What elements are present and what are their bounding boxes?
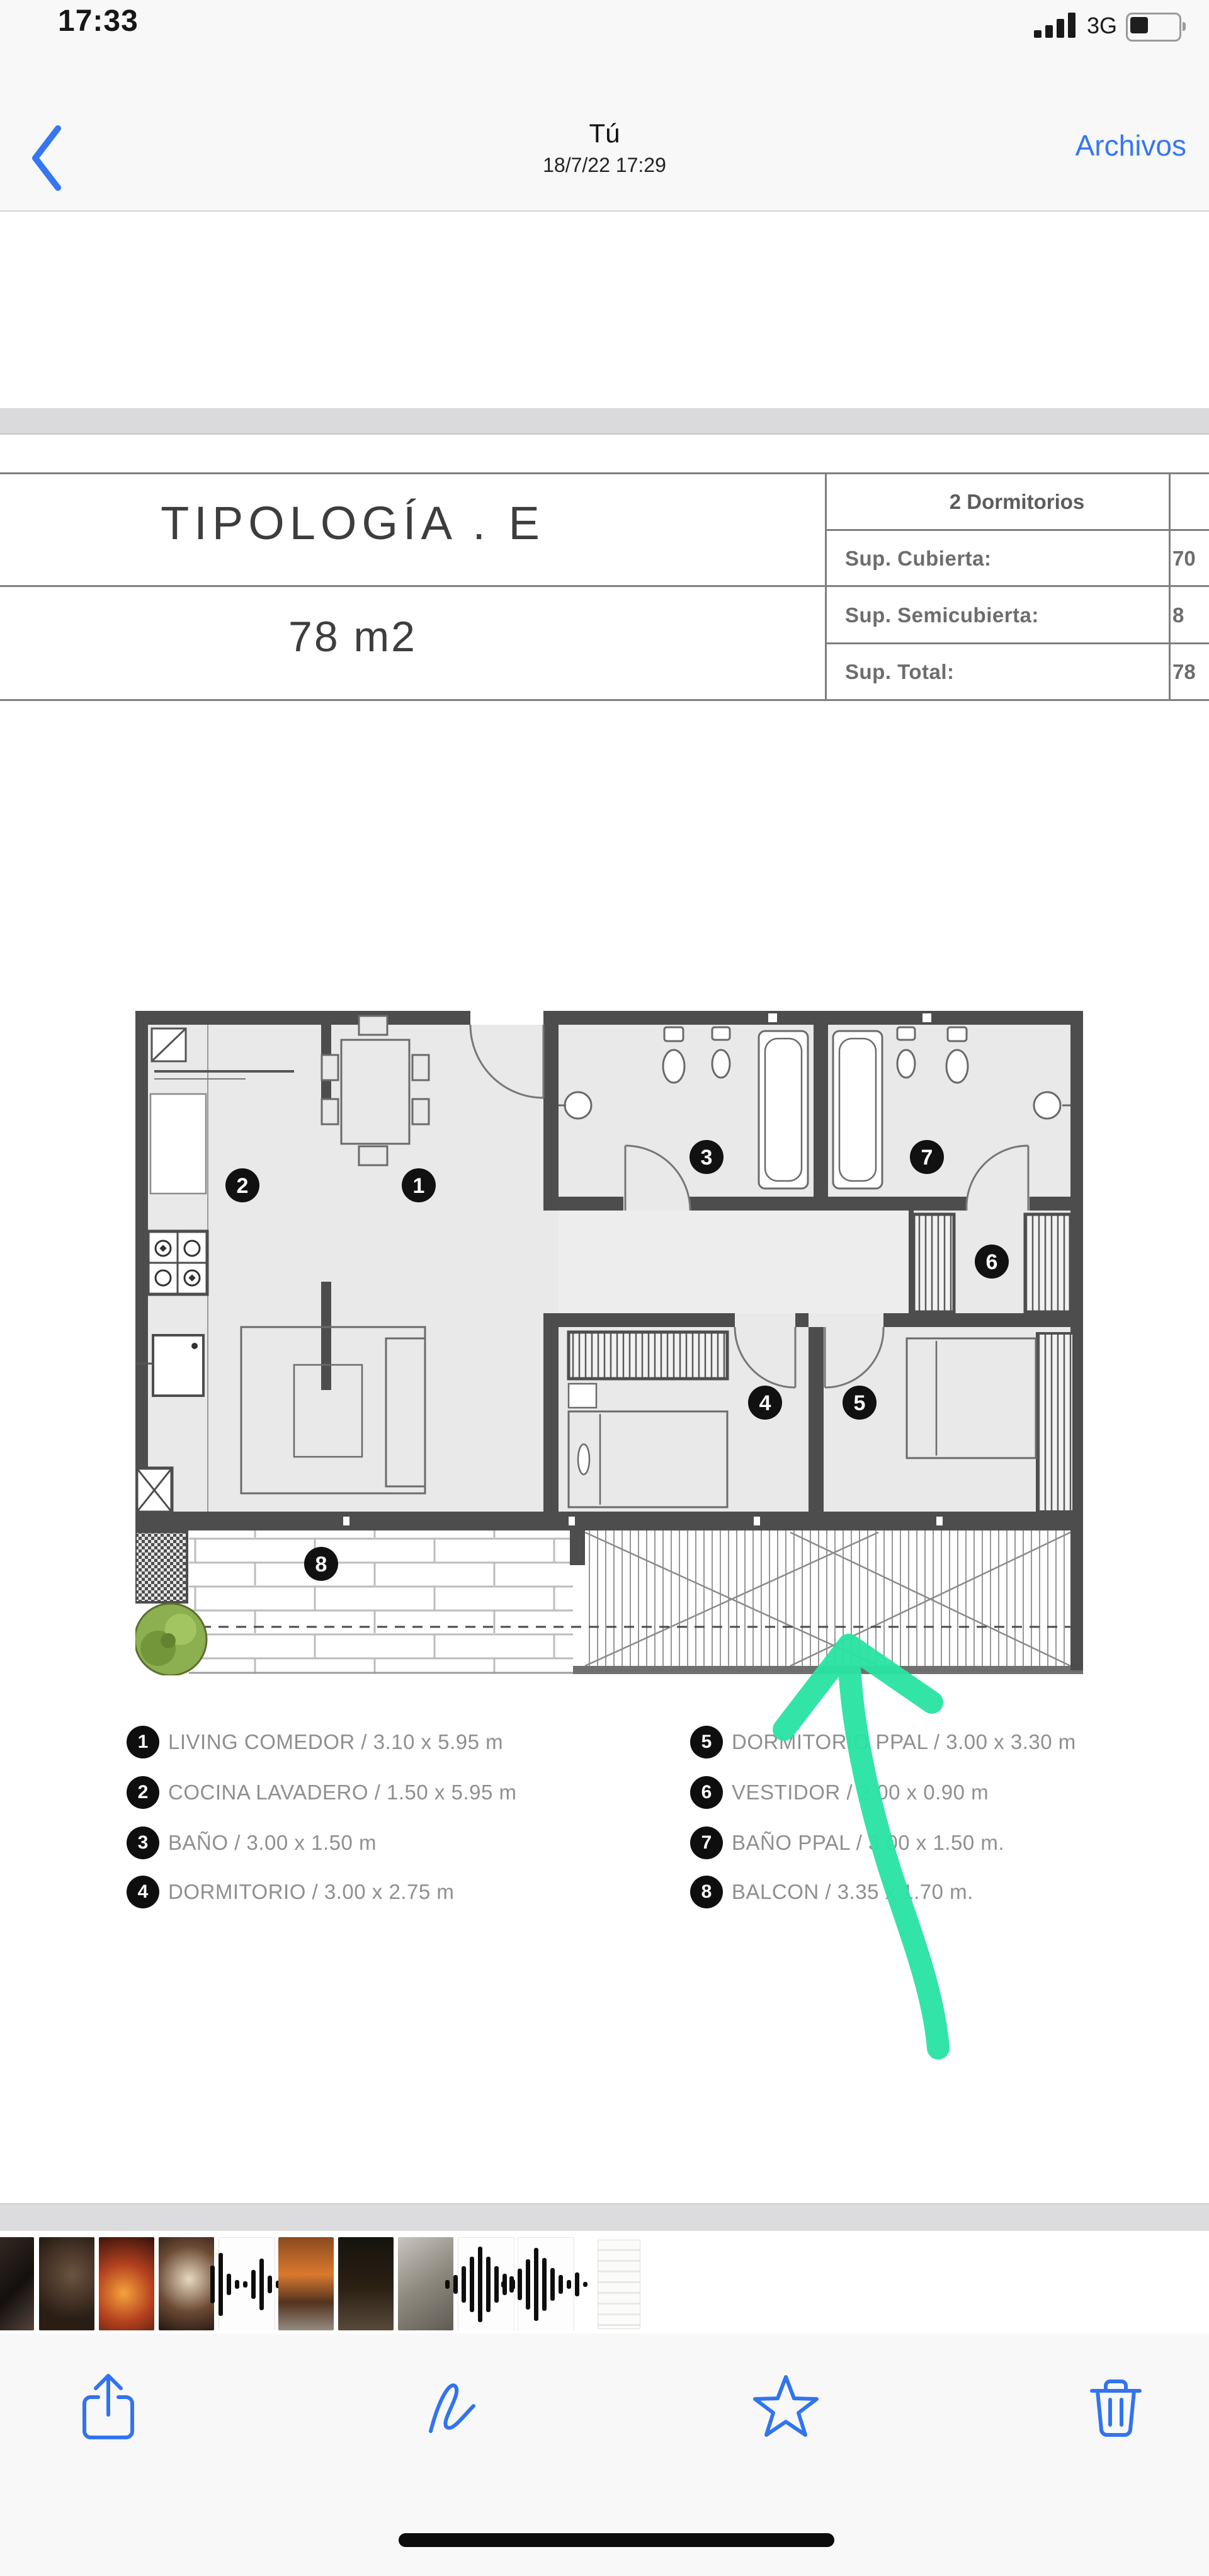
room-number-4: 4 [759,1391,771,1415]
battery-icon [1126,13,1181,42]
waveform-bar [235,2280,239,2289]
signal-icon [1034,11,1079,38]
waveform-bar [251,2270,256,2299]
legend-item: 3BAÑO / 3.00 x 1.50 m [127,1827,377,1859]
home-indicator[interactable] [399,2533,834,2547]
legend-item: 6VESTIDOR / 2.00 x 0.90 m [690,1776,989,1809]
legend-number: 8 [690,1876,723,1908]
thumbnail-waveform[interactable] [219,2237,275,2330]
waveform-bar [470,2257,474,2312]
thumbnail-waveform[interactable] [458,2237,514,2330]
balcony-paving [189,1530,573,1674]
room-number-7: 7 [921,1146,933,1170]
waveform-bar [559,2275,563,2294]
room-number-6: 6 [986,1250,998,1274]
legend-item: 5DORMITORIO PPAL / 3.00 x 3.30 m [690,1726,1076,1758]
legend-number: 4 [127,1876,159,1908]
network-type-label: 3G [1087,13,1117,39]
waveform-bar [518,2269,522,2300]
stove-icon [148,1231,207,1294]
share-button[interactable] [71,2369,146,2445]
table-row-value: 70 [1172,547,1209,571]
waveform-bar [542,2258,547,2311]
legend-number: 2 [127,1776,159,1809]
legend-text: VESTIDOR / 2.00 x 0.90 m [732,1781,989,1804]
trash-button[interactable] [1078,2369,1154,2445]
legend-number: 5 [690,1726,723,1758]
waveform-bar [494,2266,499,2303]
waveform-bar [486,2257,491,2312]
laundry-box [135,1532,187,1602]
waveform-bar [509,2276,514,2293]
table-header: 2 Dormitorios [825,490,1209,514]
waveform-bar [575,2272,579,2296]
trash-icon [1092,2381,1140,2435]
waveform-bar [210,2265,215,2303]
thumbnail-photo-fire[interactable] [99,2237,154,2330]
typology-area: 78 m2 [38,612,667,661]
table-row-value: 8 [1172,603,1209,627]
floor-plan: 1 2 3 4 5 6 7 8 [135,1011,1083,1675]
thumbnail-photo-warm[interactable] [159,2237,214,2330]
legend-number: 3 [127,1827,159,1859]
room-number-1: 1 [413,1174,425,1198]
waveform-bar [583,2282,587,2287]
waveform-bar [550,2268,555,2301]
legend-text: DORMITORIO PPAL / 3.00 x 3.30 m [732,1730,1076,1753]
table-row-label: Sup. Total: [845,660,955,684]
status-time: 17:33 [58,4,139,38]
legend-text: BALCON / 3.35 x 1.70 m. [732,1880,973,1903]
legend-item: 7BAÑO PPAL / 3.00 x 1.50 m. [690,1827,1004,1859]
typology-title: TIPOLOGÍA . E [38,496,667,550]
media-thumbnail-strip[interactable] [0,2237,1209,2330]
table-row-value: 78 [1172,660,1209,684]
waveform-bar [462,2266,466,2303]
waveform-bar [259,2259,264,2310]
document-edge-band [0,408,1209,435]
star-button[interactable] [748,2369,824,2445]
legend-text: COCINA LAVADERO / 1.50 x 5.95 m [168,1781,516,1804]
legend-text: LIVING COMEDOR / 3.10 x 5.95 m [168,1730,503,1753]
table-row-label: Sup. Cubierta: [845,547,992,571]
conversation-title: Tú [0,118,1209,149]
thumbnail-document-tile[interactable] [598,2240,640,2329]
markup-icon [431,2385,474,2431]
sink-icon [137,1468,172,1512]
legend-item: 2COCINA LAVADERO / 1.50 x 5.95 m [127,1776,516,1809]
thumbnail-waveform[interactable] [518,2237,574,2330]
legend-number: 6 [690,1776,723,1809]
waveform-bar [243,2281,247,2288]
waveform-bar [478,2247,482,2322]
legend-number: 7 [690,1827,723,1859]
thumbnail-photo-night[interactable] [338,2237,394,2330]
room-number-8: 8 [315,1553,327,1576]
waveform-bar [445,2280,450,2289]
legend-item: 8BALCON / 3.35 x 1.70 m. [690,1876,973,1908]
plant-icon [135,1604,207,1675]
waveform-bar [227,2274,231,2295]
waveform-bar [526,2259,530,2310]
room-number-5: 5 [854,1391,866,1415]
legend-text: BAÑO / 3.00 x 1.50 m [168,1831,377,1854]
star-icon [755,2377,817,2435]
legend-text: BAÑO PPAL / 3.00 x 1.50 m. [732,1831,1004,1854]
thumbnail-photo-dark-a[interactable] [0,2237,34,2330]
thumbnail-photo-dark-b[interactable] [39,2237,94,2330]
files-link[interactable]: Archivos [1076,128,1186,162]
waveform-bar [268,2276,272,2293]
legend-text: DORMITORIO / 3.00 x 2.75 m [168,1880,454,1903]
message-timestamp: 18/7/22 17:29 [0,154,1209,177]
waveform-bar [567,2280,571,2289]
top-chrome: 17:33 3G Tú 18/7/22 17:29 Archivos [0,0,1209,212]
waveform-bar [453,2275,458,2294]
waveform-bar [219,2253,223,2316]
bedroom-4-furniture [569,1332,727,1507]
room-number-3: 3 [701,1146,713,1170]
thumbnail-photo-sunset[interactable] [278,2237,334,2330]
legend-item: 1LIVING COMEDOR / 3.10 x 5.95 m [127,1726,503,1758]
legend-item: 4DORMITORIO / 3.00 x 2.75 m [127,1876,454,1908]
room-number-2: 2 [237,1174,249,1198]
waveform-bar [501,2281,506,2288]
document-edge-band-bottom [0,2203,1209,2231]
share-icon [84,2376,132,2437]
markup-button[interactable] [417,2369,492,2445]
legend-number: 1 [127,1726,159,1758]
table-row-label: Sup. Semicubierta: [845,603,1039,627]
waveform-bar [534,2248,538,2321]
